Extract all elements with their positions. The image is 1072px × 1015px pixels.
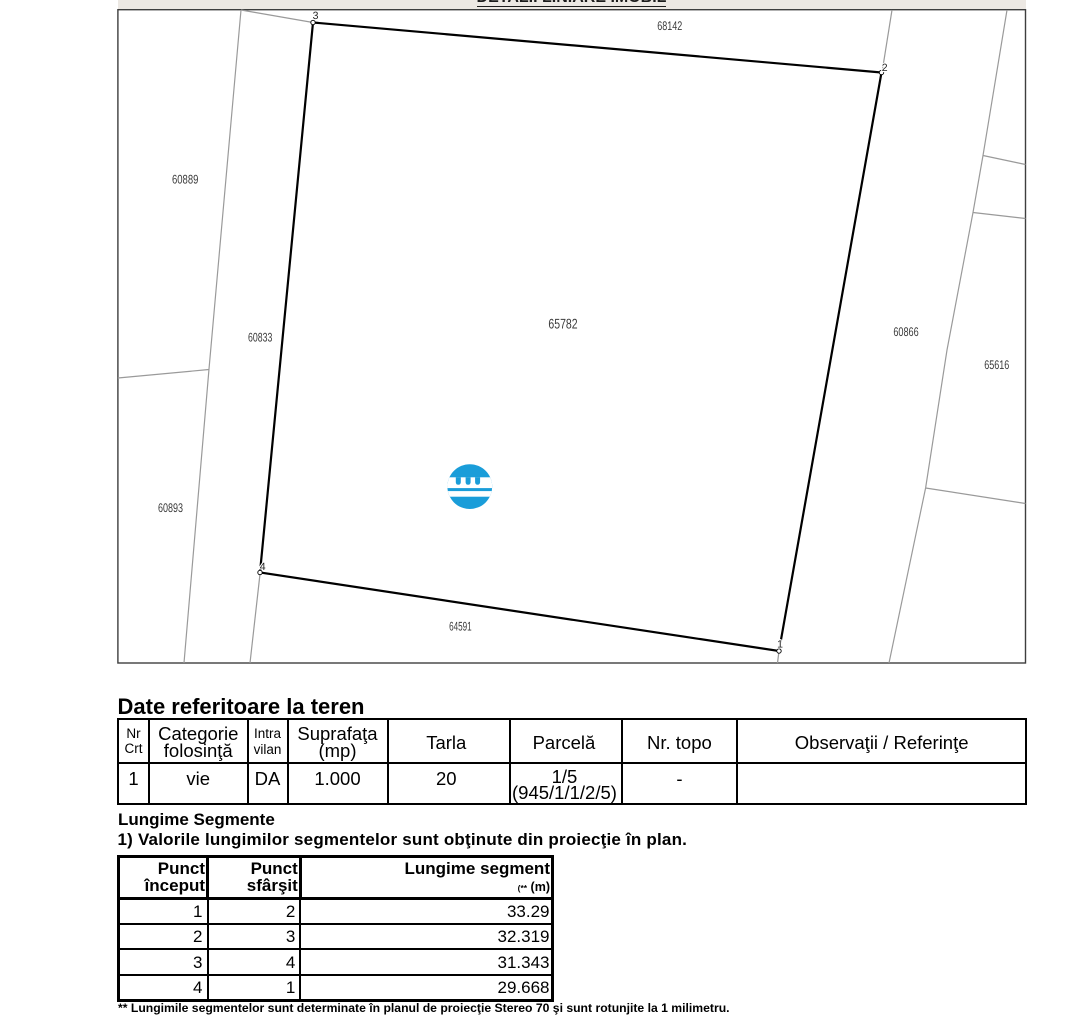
svg-text:60866: 60866 [893,325,918,339]
svg-text:3: 3 [313,10,319,22]
svg-text:60889: 60889 [172,172,198,186]
svg-text:60833: 60833 [248,330,272,344]
svg-text:65616: 65616 [984,358,1009,372]
svg-text:2: 2 [882,62,888,74]
svg-text:60893: 60893 [158,501,183,515]
svg-text:1: 1 [777,639,783,651]
svg-text:68142: 68142 [657,19,682,33]
svg-text:4: 4 [260,561,266,573]
svg-text:65782: 65782 [548,315,577,331]
svg-text:64591: 64591 [449,620,472,634]
